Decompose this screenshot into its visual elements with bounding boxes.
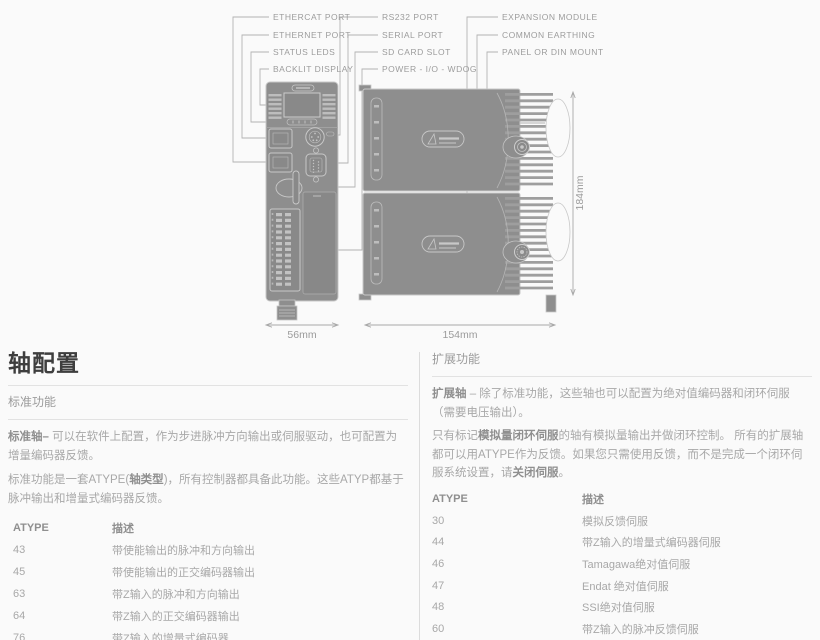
table-row: 60 带Z输入的脉冲反馈伺服 [432, 618, 812, 640]
label-ethercat-port: ETHERCAT PORT [273, 12, 350, 22]
text-run: 模拟量闭环伺服 [478, 430, 559, 442]
label-status-leds: STATUS LEDS [273, 47, 335, 57]
atype-table-expansion: ATYPE 描述 30 模拟反馈伺服 44 带Z输入的增量式编码器伺服 46 T… [432, 489, 812, 640]
atype-value: 63 [13, 588, 112, 600]
lower-module-graphic [363, 193, 570, 295]
atype-description: 带Z输入的脉冲和方向输出 [112, 586, 240, 602]
bottom-connector-graphic [277, 300, 297, 320]
dimension-front-width: 56mm [278, 329, 326, 341]
paragraph: 标准轴– 可以在软件上配置，作为步进脉冲方向输出或伺服驱动，也可配置为增量编码器… [8, 428, 408, 465]
divider [432, 376, 812, 377]
earthing-screw-graphic [503, 136, 530, 158]
expansion-functions-column: 扩展功能 扩展轴 – 除了标准功能，这些轴也可以配置为绝对值编码器和闭环伺服（需… [432, 352, 812, 640]
din-foot-graphic [546, 295, 556, 312]
atype-description: Endat 绝对值伺服 [582, 578, 669, 594]
text-run: 轴类型 [129, 474, 164, 486]
table-row: 30 模拟反馈伺服 [432, 510, 812, 532]
atype-description: 带Z输入的正交编码器输出 [112, 608, 240, 624]
table-row: 63 带Z输入的脉冲和方向输出 [13, 583, 408, 605]
label-power-io-wdog: POWER - I/O - WDOG [382, 64, 477, 74]
text-run: 只有标记 [432, 430, 478, 442]
standard-functions-column: 轴配置 标准功能 标准轴– 可以在软件上配置，作为步进脉冲方向输出或伺服驱动，也… [8, 348, 408, 640]
table-row: 64 带Z输入的正交编码器输出 [13, 605, 408, 627]
atype-description: 带Z输入的脉冲反馈伺服 [582, 621, 699, 637]
table-header-row: ATYPE 描述 [13, 517, 408, 539]
paragraph: 扩展轴 – 除了标准功能，这些轴也可以配置为绝对值编码器和闭环伺服（需要电压输出… [432, 385, 812, 422]
label-ethernet-port: ETHERNET PORT [273, 30, 351, 40]
text-run: 。 [559, 467, 571, 479]
text-run: 扩展轴 [432, 388, 467, 400]
front-view-device [266, 82, 338, 320]
dimension-height: 184mm [574, 163, 586, 223]
table-row: 44 带Z输入的增量式编码器伺服 [432, 532, 812, 554]
atype-description: 带Z输入的增量式编码器 [112, 630, 229, 640]
atype-description: 带Z输入的增量式编码器伺服 [582, 534, 721, 550]
atype-description: Tamagawa绝对值伺服 [582, 556, 690, 572]
paragraph: 标准功能是一套ATYPE(轴类型)，所有控制器都具备此功能。这些ATYP都基于脉… [8, 471, 408, 508]
atype-value: 44 [432, 536, 582, 548]
table-row: 47 Endat 绝对值伺服 [432, 575, 812, 597]
ethercat-port-graphic [269, 153, 292, 172]
atype-value: 76 [13, 632, 112, 640]
atype-value: 45 [13, 566, 112, 578]
page-title: 轴配置 [8, 348, 408, 378]
ethernet-port-graphic [269, 129, 292, 148]
side-panel-graphic [303, 192, 336, 294]
table-row: 43 带使能输出的脉冲和方向输出 [13, 539, 408, 561]
column-header-atype: ATYPE [432, 493, 582, 505]
label-rs232-port: RS232 PORT [382, 12, 439, 22]
atype-value: 46 [432, 558, 582, 570]
text-run: 可以在软件上配置，作为步进脉冲方向输出或伺服驱动，也可配置为增量编码器反馈。 [8, 431, 397, 462]
side-view-device [359, 85, 570, 312]
section-heading-expansion: 扩展功能 [432, 352, 812, 366]
label-serial-port: SERIAL PORT [382, 30, 443, 40]
upper-module-graphic [363, 89, 570, 191]
atype-value: 30 [432, 515, 582, 527]
column-header-desc: 描述 [112, 520, 134, 536]
column-header-atype: ATYPE [13, 522, 112, 534]
dimension-side-width: 154mm [430, 329, 490, 341]
atype-description: 带使能输出的脉冲和方向输出 [112, 542, 255, 558]
label-sd-card-slot: SD CARD SLOT [382, 47, 451, 57]
atype-value: 48 [432, 601, 582, 613]
atype-table-standard: ATYPE 描述 43 带使能输出的脉冲和方向输出 45 带使能输出的正交编码器… [8, 517, 408, 640]
section-heading-standard: 标准功能 [8, 395, 408, 409]
paragraph: 只有标记模拟量闭环伺服的轴有模拟量输出并做闭环控制。 所有的扩展轴都可以用ATY… [432, 427, 812, 483]
divider [8, 385, 408, 386]
datasheet-page: ETHERCAT PORT ETHERNET PORT STATUS LEDS … [0, 0, 820, 640]
text-run: 关闭伺服 [513, 467, 559, 479]
atype-value: 64 [13, 610, 112, 622]
column-header-desc: 描述 [582, 491, 604, 507]
text-run: 标准功能是一套ATYPE( [8, 474, 129, 486]
atype-description: 带使能输出的正交编码器输出 [112, 564, 255, 580]
atype-value: 60 [432, 623, 582, 635]
atype-value: 43 [13, 544, 112, 556]
table-row: 46 Tamagawa绝对值伺服 [432, 553, 812, 575]
label-panel-din-mount: PANEL OR DIN MOUNT [502, 47, 604, 57]
divider [8, 419, 408, 420]
label-expansion-module: EXPANSION MODULE [502, 12, 598, 22]
atype-description: 模拟反馈伺服 [582, 513, 648, 529]
io-terminal-graphic [270, 209, 300, 291]
earthing-screw-graphic [503, 241, 530, 263]
atype-value: 47 [432, 580, 582, 592]
atype-description: SSI绝对值伺服 [582, 599, 655, 615]
display-graphic [284, 93, 320, 117]
column-divider [419, 352, 420, 640]
text-run: – 除了标准功能，这些轴也可以配置为绝对值编码器和闭环伺服（需要电压输出）。 [432, 388, 790, 419]
text-run: 标准轴– [8, 431, 49, 443]
label-backlit-display: BACKLIT DISPLAY [273, 64, 353, 74]
table-header-row: ATYPE 描述 [432, 489, 812, 511]
table-row: 45 带使能输出的正交编码器输出 [13, 561, 408, 583]
label-common-earthing: COMMON EARTHING [502, 30, 595, 40]
table-row: 48 SSI绝对值伺服 [432, 596, 812, 618]
table-row: 76 带Z输入的增量式编码器 [13, 627, 408, 640]
